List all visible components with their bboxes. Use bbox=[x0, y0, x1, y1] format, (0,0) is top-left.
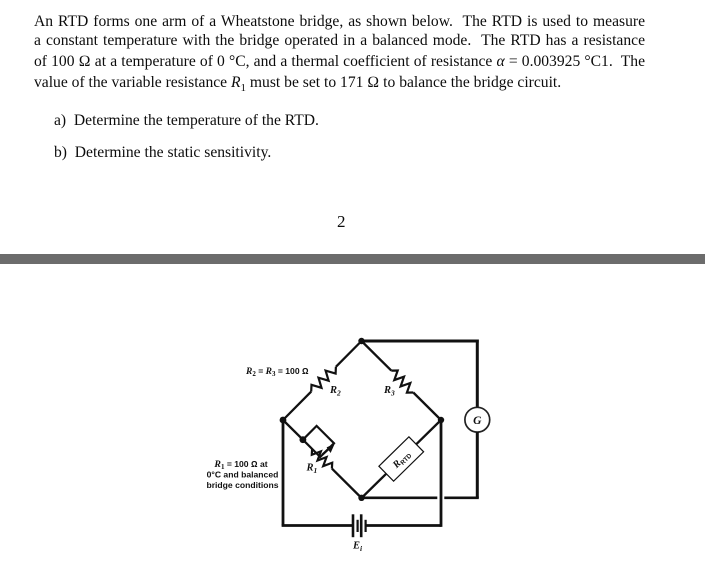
svg-text:R1: R1 bbox=[306, 463, 318, 475]
svg-text:G: G bbox=[473, 415, 482, 427]
svg-text:0°C and balanced: 0°C and balanced bbox=[207, 470, 279, 480]
svg-text:R3: R3 bbox=[383, 385, 395, 397]
svg-text:Ei: Ei bbox=[352, 541, 363, 553]
svg-text:R2: R2 bbox=[329, 385, 341, 397]
svg-text:R2 = R3 = 100 Ω: R2 = R3 = 100 Ω bbox=[245, 366, 309, 378]
svg-text:bridge conditions: bridge conditions bbox=[206, 480, 278, 490]
